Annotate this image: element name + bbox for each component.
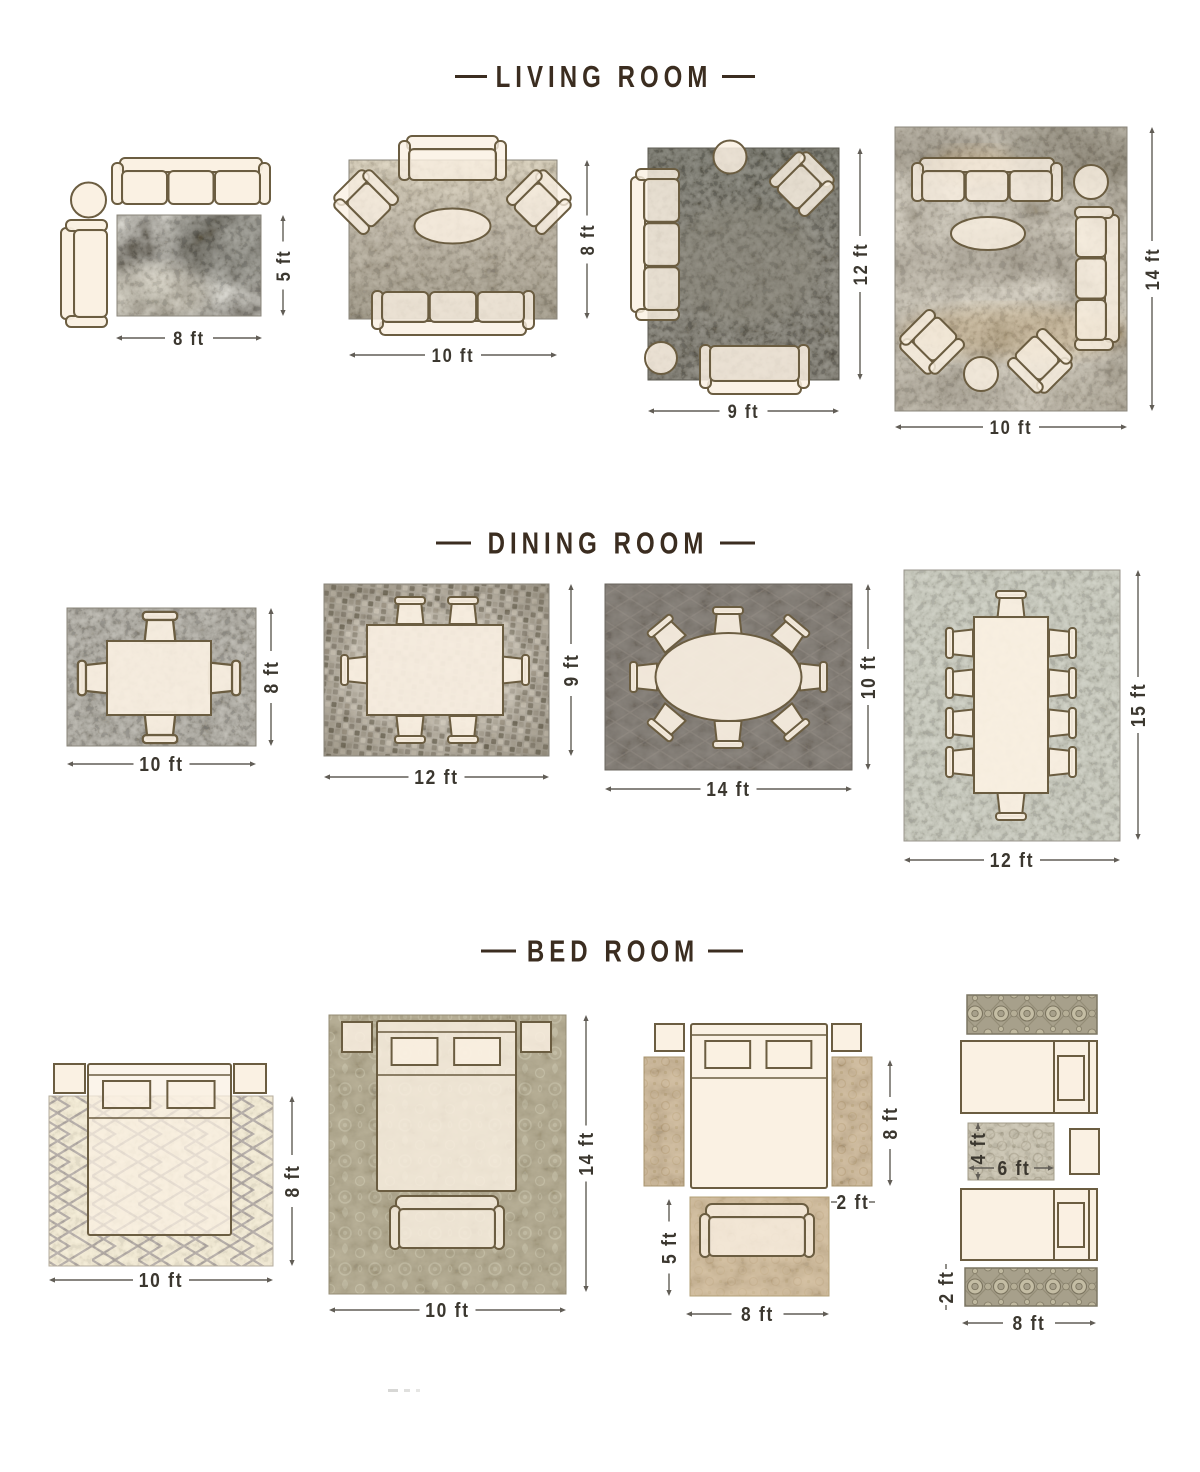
svg-text:9 ft: 9 ft (560, 653, 582, 686)
svg-text:LIVING ROOM: LIVING ROOM (496, 59, 713, 94)
svg-text:5 ft: 5 ft (273, 250, 294, 282)
svg-text:8 ft: 8 ft (577, 224, 598, 256)
svg-text:8 ft: 8 ft (173, 328, 205, 349)
svg-text:15 ft: 15 ft (1127, 683, 1149, 727)
svg-text:4 ft: 4 ft (967, 1131, 989, 1164)
svg-text:5 ft: 5 ft (658, 1231, 680, 1264)
svg-text:8 ft: 8 ft (741, 1303, 774, 1325)
svg-text:8 ft: 8 ft (879, 1106, 901, 1139)
svg-text:6 ft: 6 ft (997, 1157, 1030, 1179)
svg-text:8 ft: 8 ft (1012, 1312, 1045, 1334)
svg-text:10 ft: 10 ft (990, 417, 1033, 438)
svg-text:BED ROOM: BED ROOM (527, 934, 699, 969)
svg-text:10 ft: 10 ft (139, 1269, 183, 1291)
svg-text:DINING ROOM: DINING ROOM (488, 526, 709, 561)
svg-text:14 ft: 14 ft (706, 778, 750, 800)
svg-text:10 ft: 10 ft (425, 1299, 469, 1321)
svg-text:8 ft: 8 ft (260, 660, 282, 693)
svg-text:2 ft: 2 ft (836, 1191, 869, 1213)
svg-text:12 ft: 12 ft (990, 849, 1034, 871)
svg-text:8 ft: 8 ft (281, 1164, 303, 1197)
svg-text:2 ft: 2 ft (935, 1270, 957, 1303)
svg-text:12 ft: 12 ft (850, 243, 871, 286)
svg-text:14 ft: 14 ft (1142, 248, 1163, 291)
svg-text:10 ft: 10 ft (857, 655, 879, 699)
svg-text:12 ft: 12 ft (414, 766, 458, 788)
svg-text:9 ft: 9 ft (728, 401, 760, 422)
svg-text:14 ft: 14 ft (575, 1131, 597, 1175)
svg-text:10 ft: 10 ft (139, 753, 183, 775)
svg-text:10 ft: 10 ft (432, 345, 475, 366)
